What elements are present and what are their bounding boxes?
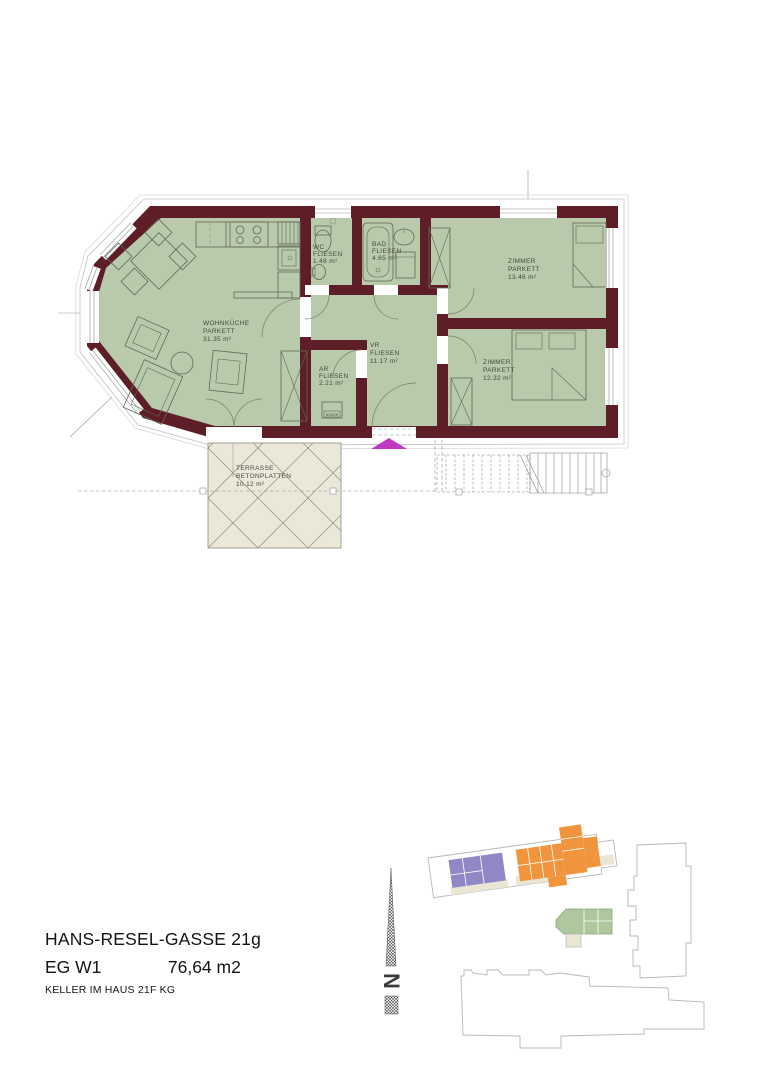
room-label-vr-floor: FLIESEN <box>370 350 400 357</box>
north-letter: N <box>379 973 404 989</box>
room-label-wohnkueche-name: WOHNKÜCHE <box>203 319 250 327</box>
cellar-note: KELLER IM HAUS 21F KG <box>45 984 261 996</box>
floor-plan-page: BOILER TERRASSE BETONPLATTEN 10.12 m² <box>0 0 763 1080</box>
terrace: TERRASSE BETONPLATTEN 10.12 m² <box>103 443 413 548</box>
terrace-label-material: BETONPLATTEN <box>236 473 291 480</box>
address-line: HANS-RESEL-GASSE 21g <box>45 929 261 950</box>
total-area-label: 76,64 m2 <box>168 957 241 977</box>
room-label-ar-floor: FLIESEN <box>319 373 349 380</box>
terrace-label-area: 10.12 m² <box>236 481 265 488</box>
room-label-wohnkueche-floor: PARKETT <box>203 328 235 335</box>
room-label-bad-floor: FLIESEN <box>372 248 402 255</box>
room-label-zimmer2-area: 12.32 m² <box>483 375 512 382</box>
site-building-right <box>628 843 691 978</box>
room-label-bad-area: 4.65 m² <box>372 255 397 262</box>
room-label-bad-name: BAD <box>372 241 386 248</box>
floor-plan-drawing: BOILER TERRASSE BETONPLATTEN 10.12 m² <box>0 0 763 1080</box>
site-plan <box>426 820 704 1048</box>
room-label-ar-name: AR <box>319 366 329 373</box>
room-label-wohnkueche-area: 31.35 m² <box>203 336 232 343</box>
floor-unit-label: EG W1 <box>45 957 163 978</box>
room-label-wc-name: WC <box>313 244 325 251</box>
room-label-vr-area: 11.17 m² <box>370 358 398 365</box>
room-label-zimmer1-name: ZIMMER <box>508 258 536 265</box>
room-label-vr-name: VR <box>370 342 380 349</box>
room-label-wc-area: 1.48 m² <box>313 258 338 265</box>
site-building-top <box>426 820 618 903</box>
boiler-label: BOILER <box>326 413 339 417</box>
terrace-label-name: TERRASSE <box>236 465 274 472</box>
unit-area-line: EG W1 76,64 m2 <box>45 957 261 978</box>
north-arrow-icon: N <box>379 868 404 1014</box>
site-building-bottom <box>461 970 704 1048</box>
room-label-zimmer1-floor: PARKETT <box>508 266 540 273</box>
room-label-ar-area: 2.21 m² <box>319 380 344 387</box>
room-label-wc-floor: FLIESEN <box>313 251 343 258</box>
title-block: HANS-RESEL-GASSE 21g EG W1 76,64 m2 KELL… <box>45 929 261 996</box>
room-label-zimmer1-area: 13.46 m² <box>508 274 537 281</box>
room-label-zimmer2-floor: PARKETT <box>483 367 515 374</box>
room-label-zimmer2-name: ZIMMER <box>483 359 511 366</box>
site-highlight-unit <box>556 909 612 947</box>
